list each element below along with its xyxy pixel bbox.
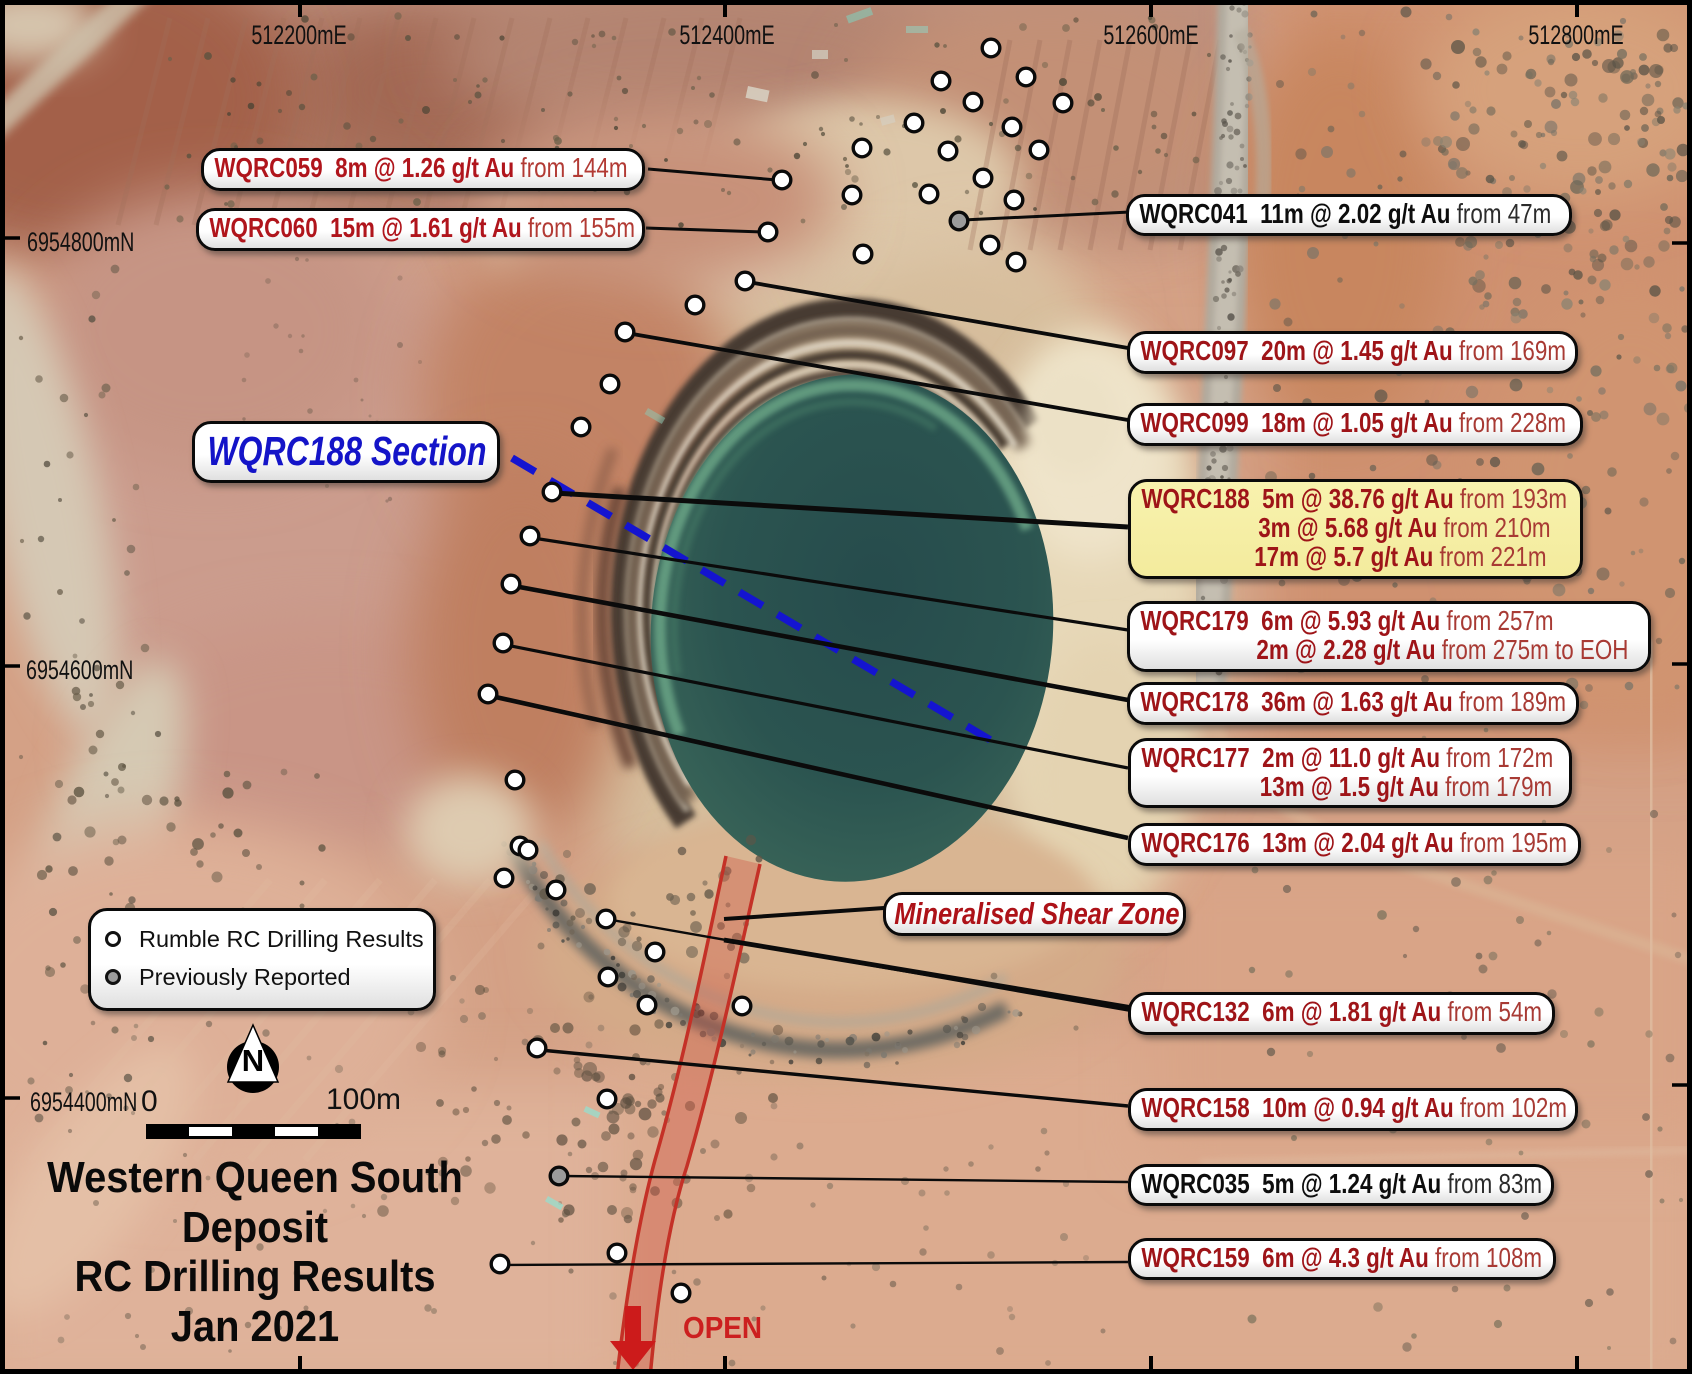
svg-text:N: N	[242, 1043, 264, 1078]
